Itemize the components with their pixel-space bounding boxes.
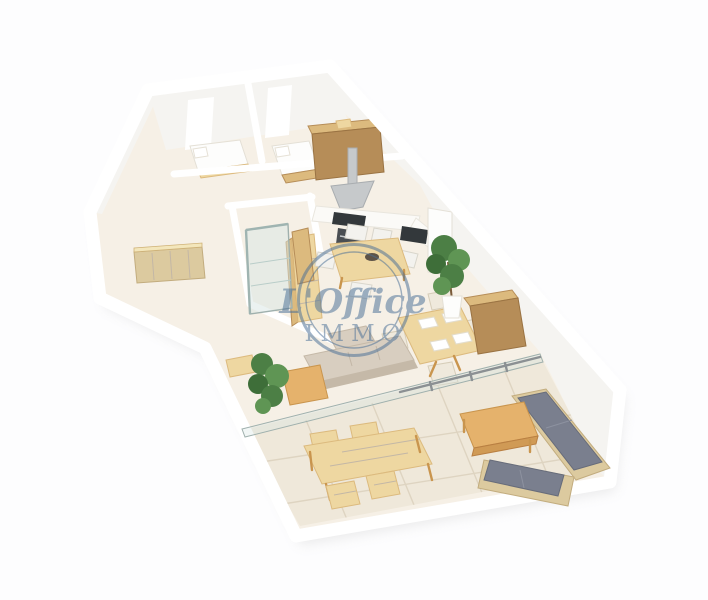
kitchen-chair: [345, 224, 368, 241]
terrace-chair: [326, 481, 360, 509]
watermark-word-text: IMMO: [304, 321, 407, 347]
bedroom-window-2: [265, 85, 292, 138]
watermark-script-text: L'Office: [278, 282, 426, 322]
pillow: [275, 146, 290, 157]
hallway: [134, 243, 205, 283]
wicker-sideboard: [134, 243, 205, 283]
coffee-table-indoor: [282, 365, 328, 405]
wardrobe-box: [336, 119, 352, 129]
floor-plan-svg: L'Office IMMO: [0, 0, 708, 600]
bedroom-window-1: [185, 97, 214, 150]
pillow: [193, 147, 208, 158]
plant-pot: [442, 296, 462, 318]
floor-plan-render: L'Office IMMO: [0, 0, 708, 600]
wardrobe: [308, 119, 384, 180]
terrace-chair: [366, 471, 400, 499]
hood-chimney: [348, 148, 357, 188]
